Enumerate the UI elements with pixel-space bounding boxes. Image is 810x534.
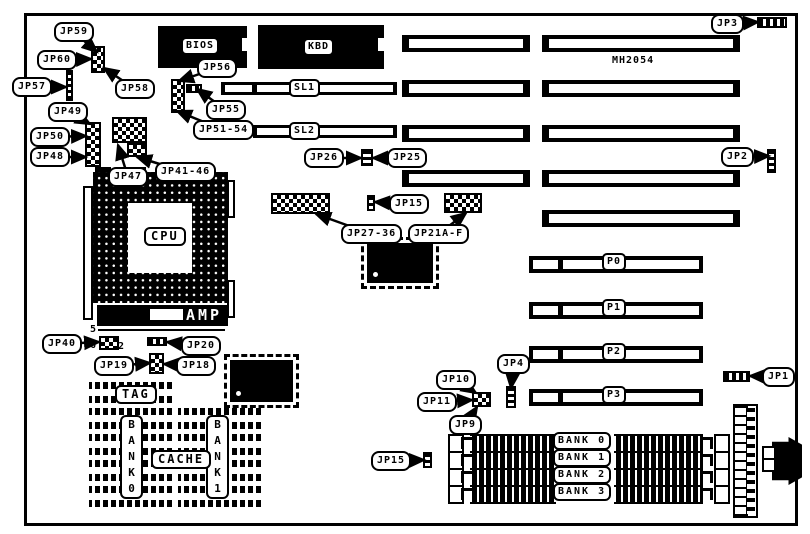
- isa-slot-right-4: [542, 170, 740, 187]
- jumper-block-jp48-50: [85, 122, 101, 167]
- callout-jp15-14: JP15: [389, 194, 429, 214]
- socket-baseline: [98, 329, 225, 331]
- callout-jp19-23: JP19: [94, 356, 134, 376]
- simm-3-clip-left: [461, 488, 472, 500]
- pin-marker-2: 2: [118, 341, 124, 352]
- jumper-block-jp51-56: [171, 79, 185, 113]
- bios-chip-notch: [242, 38, 247, 51]
- chipset-qfp-cache: [224, 354, 299, 408]
- jumper-jp2: [767, 149, 776, 173]
- callout-jp2-18: JP2: [721, 147, 754, 167]
- board-model-text: MH2054: [612, 55, 654, 66]
- simm-3-body-left: [470, 485, 556, 504]
- simm-3-clip-right: [702, 488, 713, 500]
- cpu-lever-bar-left: [83, 186, 93, 320]
- simm-2-clip-right: [702, 471, 713, 483]
- isa-slot-right-2: [542, 80, 740, 97]
- jumper-jp25-26: [361, 149, 373, 166]
- slot-sl2-label: SL2: [289, 122, 320, 140]
- p-slot-label-0: P0: [602, 253, 626, 271]
- callout-jp41-46-11: JP41-46: [155, 162, 216, 182]
- p-slot-label-1: P1: [602, 299, 626, 317]
- callout-jp58-3: JP58: [115, 79, 155, 99]
- slot-sl1-divider: [252, 82, 257, 95]
- bios-chip-label: BIOS: [181, 37, 219, 55]
- callout-jp55-5: JP55: [206, 100, 246, 120]
- cache-label: CACHE: [151, 450, 211, 469]
- slot-sl2-stripe: [257, 128, 393, 135]
- callout-jp48-9: JP48: [30, 147, 70, 167]
- callout-jp49-7: JP49: [48, 102, 88, 122]
- simm-0-clip-left: [461, 437, 472, 449]
- callout-jp4-20: JP4: [497, 354, 530, 374]
- slot-sl2: [253, 125, 397, 138]
- simm-3-body-right: [614, 485, 703, 504]
- jumper-jp15-bottom: [423, 452, 432, 468]
- simm-bank-label-0: BANK 0: [553, 432, 611, 450]
- simm-1-clip-right: [702, 454, 713, 466]
- callout-jp20-22: JP20: [181, 336, 221, 356]
- jumper-block-jp21a-f: [444, 193, 482, 213]
- simm-1-clip-left: [461, 454, 472, 466]
- jumper-block-jp41-46: [112, 117, 147, 143]
- motherboard-jumper-diagram: BIOS KBD SL1 SL2 MH2054 CPU AMP: [0, 0, 810, 534]
- callout-jp25-13: JP25: [387, 148, 427, 168]
- callout-jp56-4: JP56: [197, 58, 237, 78]
- callout-jp51-54-6: JP51-54: [193, 120, 254, 140]
- callout-jp57-2: JP57: [12, 77, 52, 97]
- simm-3-end-right: [714, 485, 730, 504]
- callout-jp26-12: JP26: [304, 148, 344, 168]
- jumper-block-jp47: [127, 143, 147, 157]
- jumper-jp3: [757, 17, 787, 28]
- callout-jp59-0: JP59: [54, 22, 94, 42]
- amp-connector-window: [150, 309, 183, 320]
- feature-pin-header-pins: [747, 408, 755, 514]
- jumper-jp4: [506, 386, 516, 408]
- callout-jp18-24: JP18: [176, 356, 216, 376]
- cpu-bar-right-top: [227, 180, 235, 218]
- isa-slot-right-3: [542, 125, 740, 142]
- jumper-block-jp18-19: [149, 353, 164, 374]
- jumper-jp55: [186, 84, 202, 93]
- callout-jp60-1: JP60: [37, 50, 77, 70]
- simm-2-clip-left: [461, 471, 472, 483]
- isa-slot-right-1: [542, 35, 740, 52]
- p-slot-label-3: P3: [602, 386, 626, 404]
- cpu-label: CPU: [144, 227, 186, 246]
- simm-bank-label-2: BANK 2: [553, 466, 611, 484]
- jumper-block-jp40: [99, 336, 119, 350]
- jumper-block-jp9-11: [472, 392, 491, 407]
- p-slot-label-2: P2: [602, 343, 626, 361]
- tag-ram-label: TAG: [115, 385, 157, 404]
- isa-slot-right-5: [542, 210, 740, 227]
- jumper-block-jp58-60: [91, 46, 105, 73]
- callout-jp40-21: JP40: [42, 334, 82, 354]
- isa-slot-left-2: [402, 80, 530, 97]
- callout-jp1-19: JP1: [762, 367, 795, 387]
- callout-jp10-25: JP10: [436, 370, 476, 390]
- callout-jp21a-f-16: JP21A-F: [408, 224, 469, 244]
- isa-slot-left-4: [402, 170, 530, 187]
- jumper-jp57: [66, 70, 73, 101]
- simm-0-clip-right: [702, 437, 713, 449]
- callout-jp9-27: JP9: [449, 415, 482, 435]
- jumper-jp15-top: [367, 195, 375, 211]
- kbd-chip-notch: [378, 38, 384, 51]
- pin-marker-5: 5: [90, 324, 96, 335]
- simm-bank-label-3: BANK 3: [553, 483, 611, 501]
- callout-jp15-28: JP15: [371, 451, 411, 471]
- edge-connector-notch-2: [762, 458, 776, 472]
- pin-marker-6: 6: [90, 340, 96, 351]
- simm-bank-label-1: BANK 1: [553, 449, 611, 467]
- jumper-jp1: [723, 371, 750, 382]
- amp-label: AMP: [186, 307, 222, 323]
- chipset-qfp-center: [361, 237, 439, 289]
- cpu-bar-right-bottom: [227, 280, 235, 318]
- jumper-jp20: [147, 337, 167, 346]
- callout-jp47-10: JP47: [108, 167, 148, 187]
- callout-jp27-36-15: JP27-36: [341, 224, 402, 244]
- kbd-chip-label: KBD: [303, 38, 334, 56]
- chipset-qfp-center-die: [367, 243, 433, 283]
- callout-jp11-26: JP11: [417, 392, 457, 412]
- edge-connector: [772, 437, 802, 485]
- callout-jp3-17: JP3: [711, 14, 744, 34]
- chipset-qfp-cache-die: [230, 360, 293, 402]
- isa-slot-left-3: [402, 125, 530, 142]
- cache-bank0-vertical-label: BANK0: [120, 415, 143, 499]
- jumper-block-jp27-36: [271, 193, 330, 214]
- isa-slot-left-1: [402, 35, 530, 52]
- callout-jp50-8: JP50: [30, 127, 70, 147]
- slot-sl1-label: SL1: [289, 79, 320, 97]
- feature-pin-header: [733, 404, 758, 518]
